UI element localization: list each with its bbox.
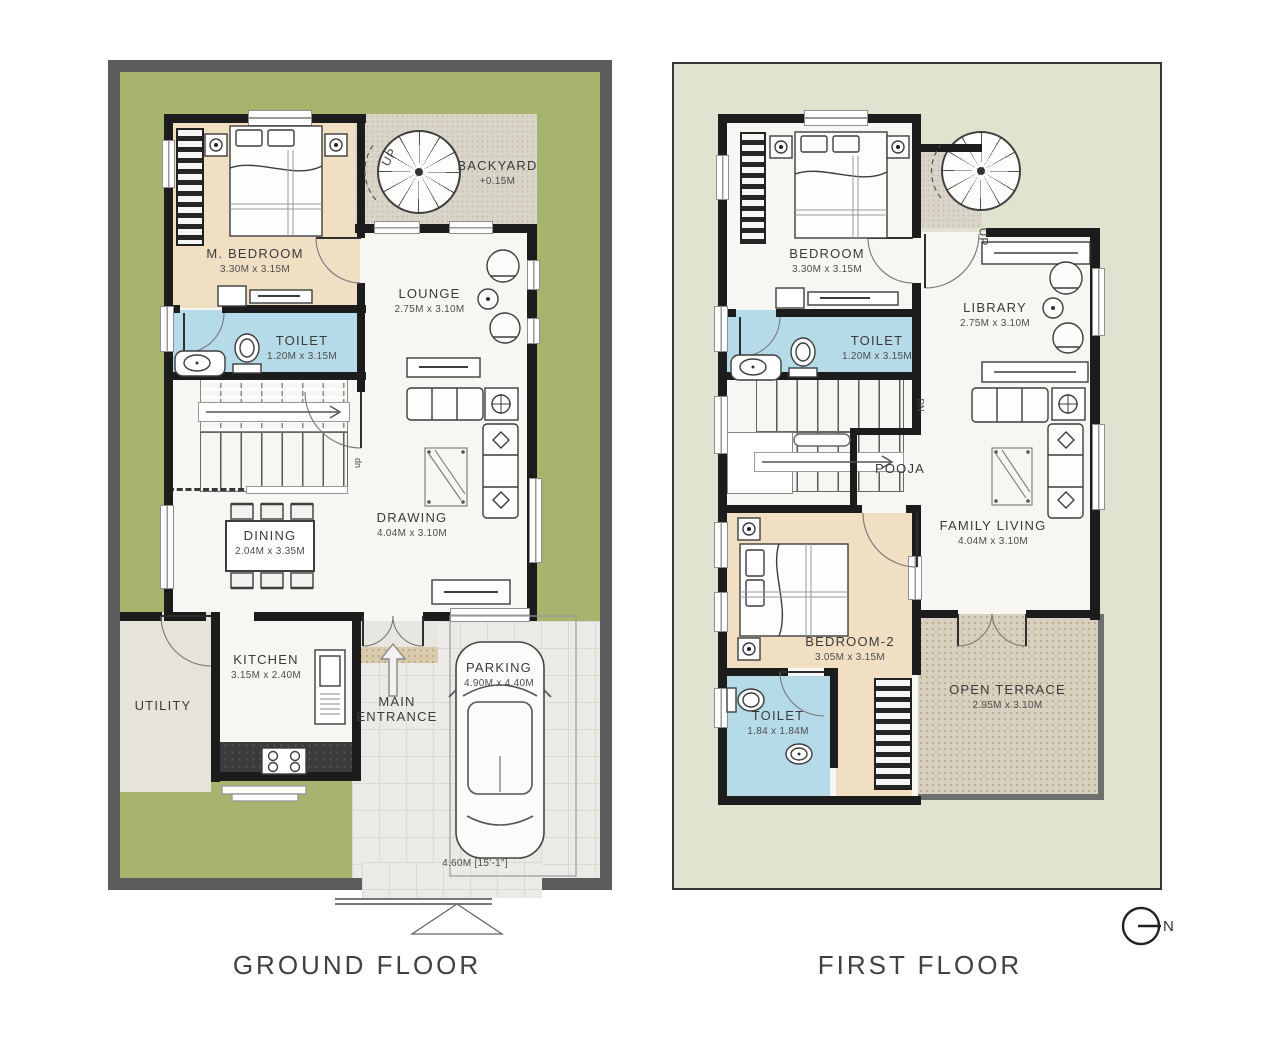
gate-icon <box>412 904 502 934</box>
window <box>160 306 174 352</box>
wardrobe <box>740 132 766 244</box>
room-label-bedroom2: BEDROOM-2 3.05M x 3.15M <box>790 634 910 663</box>
spiral-stair-icon <box>941 131 1021 211</box>
gate-line <box>335 898 492 905</box>
room-label-backyard: BACKYARD +0.15M <box>440 158 555 187</box>
beam-dashed <box>168 488 244 491</box>
ground-floor-title: GROUND FLOOR <box>157 950 557 981</box>
window <box>804 110 868 126</box>
wall <box>912 144 982 152</box>
window <box>716 155 729 200</box>
floor-plan-canvas: M. BEDROOM 3.30M x 3.15M TOILET 1.20M x … <box>0 0 1280 1042</box>
room-label-toilet1: TOILET 1.20M x 3.15M <box>820 333 934 362</box>
wall <box>1026 610 1096 618</box>
window <box>908 556 922 600</box>
stair-direction-label: up <box>352 458 362 468</box>
room-label-main-entrance: MAIN ENTRANCE <box>347 694 447 724</box>
wall <box>986 228 1096 237</box>
room-label-library: LIBRARY 2.75M x 3.10M <box>938 300 1052 329</box>
wall <box>222 305 366 313</box>
wall <box>824 668 838 676</box>
wall <box>164 372 366 380</box>
wall <box>254 612 364 621</box>
wall <box>912 114 921 238</box>
room-label-toilet: TOILET 1.20M x 3.15M <box>246 333 358 362</box>
window <box>248 110 312 126</box>
window <box>450 608 530 622</box>
window <box>1092 268 1105 336</box>
stair-flight-lower <box>200 432 348 492</box>
terrace-parapet <box>918 794 1104 800</box>
spiral-direction-label: UP <box>976 228 990 247</box>
room-label-utility: UTILITY <box>117 698 209 713</box>
window <box>714 592 728 632</box>
wall <box>211 772 361 781</box>
wall <box>164 612 206 621</box>
room-label-family-living: FAMILY LIVING 4.04M x 3.10M <box>922 518 1064 547</box>
window <box>527 318 540 344</box>
wall <box>918 610 958 618</box>
wall <box>850 428 921 435</box>
porch-step <box>352 647 438 663</box>
room-label-pooja: POOJA <box>845 461 955 476</box>
window <box>714 306 728 352</box>
stair-nosing <box>246 486 348 494</box>
window <box>714 396 728 454</box>
kitchen-counter <box>215 742 352 776</box>
wall <box>906 505 921 513</box>
wall <box>423 612 450 621</box>
window <box>714 522 728 568</box>
wall <box>120 612 162 621</box>
room-label-open-terrace: OPEN TERRACE 2.95M x 3.10M <box>945 682 1070 711</box>
library-family-floor <box>918 232 1094 614</box>
wall <box>776 309 921 317</box>
wall <box>211 612 220 782</box>
porch-floor <box>352 621 438 647</box>
wall <box>718 796 921 805</box>
wardrobe <box>176 128 204 246</box>
window <box>162 140 175 188</box>
window <box>160 505 174 589</box>
window <box>1092 424 1105 510</box>
stair-rail <box>198 402 350 422</box>
room-label-toilet2: TOILET 1.84 x 1.84M <box>722 708 834 737</box>
wall <box>718 668 788 676</box>
room-label-dining: DINING 2.04M x 3.35M <box>225 528 315 557</box>
window <box>374 221 420 234</box>
room-label-kitchen: KITCHEN 3.15M x 2.40M <box>209 652 323 681</box>
window <box>449 221 493 234</box>
wardrobe <box>874 678 912 790</box>
window <box>527 260 540 290</box>
wall <box>718 372 921 380</box>
room-label-m-bedroom: M. BEDROOM 3.30M x 3.15M <box>197 246 313 275</box>
room-label-lounge: LOUNGE 2.75M x 3.10M <box>372 286 487 315</box>
window <box>529 478 542 563</box>
room-label-drawing: DRAWING 4.04M x 3.10M <box>355 510 469 539</box>
room-label-bedroom: BEDROOM 3.30M x 3.15M <box>770 246 884 275</box>
terrace-parapet <box>1098 614 1104 800</box>
first-floor-title: FIRST FLOOR <box>720 950 1120 981</box>
stair-direction-label: DN <box>916 399 926 412</box>
parking-stall-dim: 4.60M [15'-1"] <box>420 858 530 869</box>
wall <box>357 114 365 238</box>
stair-flight-upper <box>756 378 904 432</box>
north-compass-icon <box>1123 908 1161 944</box>
north-label: N <box>1163 918 1174 935</box>
room-label-parking: PARKING 4.90M x 4.40M <box>442 660 556 689</box>
wall <box>718 505 862 513</box>
